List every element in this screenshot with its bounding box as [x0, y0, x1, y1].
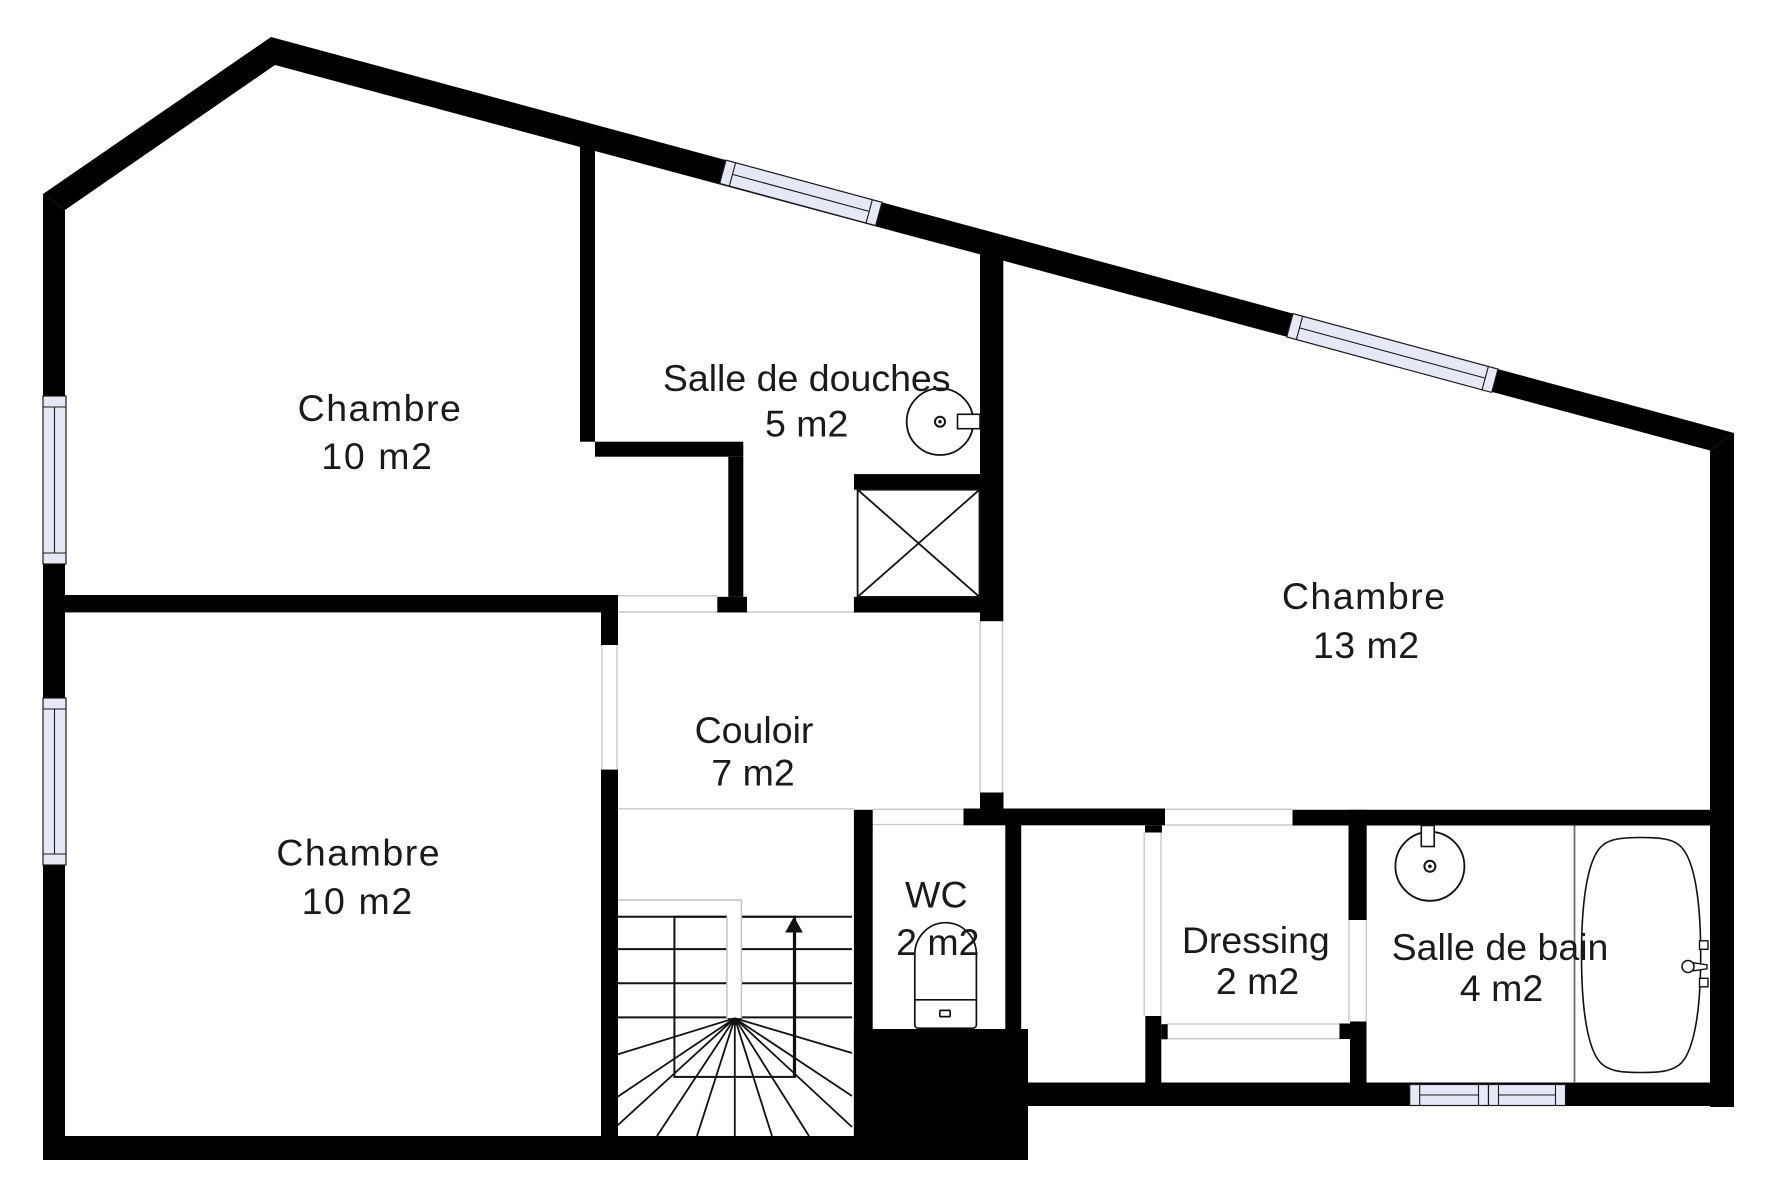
svg-text:10 m2: 10 m2: [302, 880, 414, 922]
svg-text:Chambre: Chambre: [298, 387, 463, 429]
svg-text:Salle de bain: Salle de bain: [1392, 926, 1609, 968]
svg-text:Couloir: Couloir: [695, 709, 814, 751]
svg-text:2 m2: 2 m2: [1216, 960, 1299, 1002]
svg-text:Chambre: Chambre: [1282, 575, 1447, 617]
svg-text:Salle de douches: Salle de douches: [663, 357, 951, 399]
svg-text:7 m2: 7 m2: [711, 752, 794, 794]
svg-text:13 m2: 13 m2: [1313, 624, 1420, 666]
svg-text:5 m2: 5 m2: [765, 403, 848, 445]
svg-text:10 m2: 10 m2: [321, 435, 433, 477]
svg-text:Chambre: Chambre: [276, 832, 441, 874]
svg-text:WC: WC: [905, 874, 967, 916]
svg-text:4 m2: 4 m2: [1460, 967, 1543, 1009]
svg-text:2 m2: 2 m2: [896, 921, 979, 963]
svg-text:Dressing: Dressing: [1182, 919, 1330, 961]
